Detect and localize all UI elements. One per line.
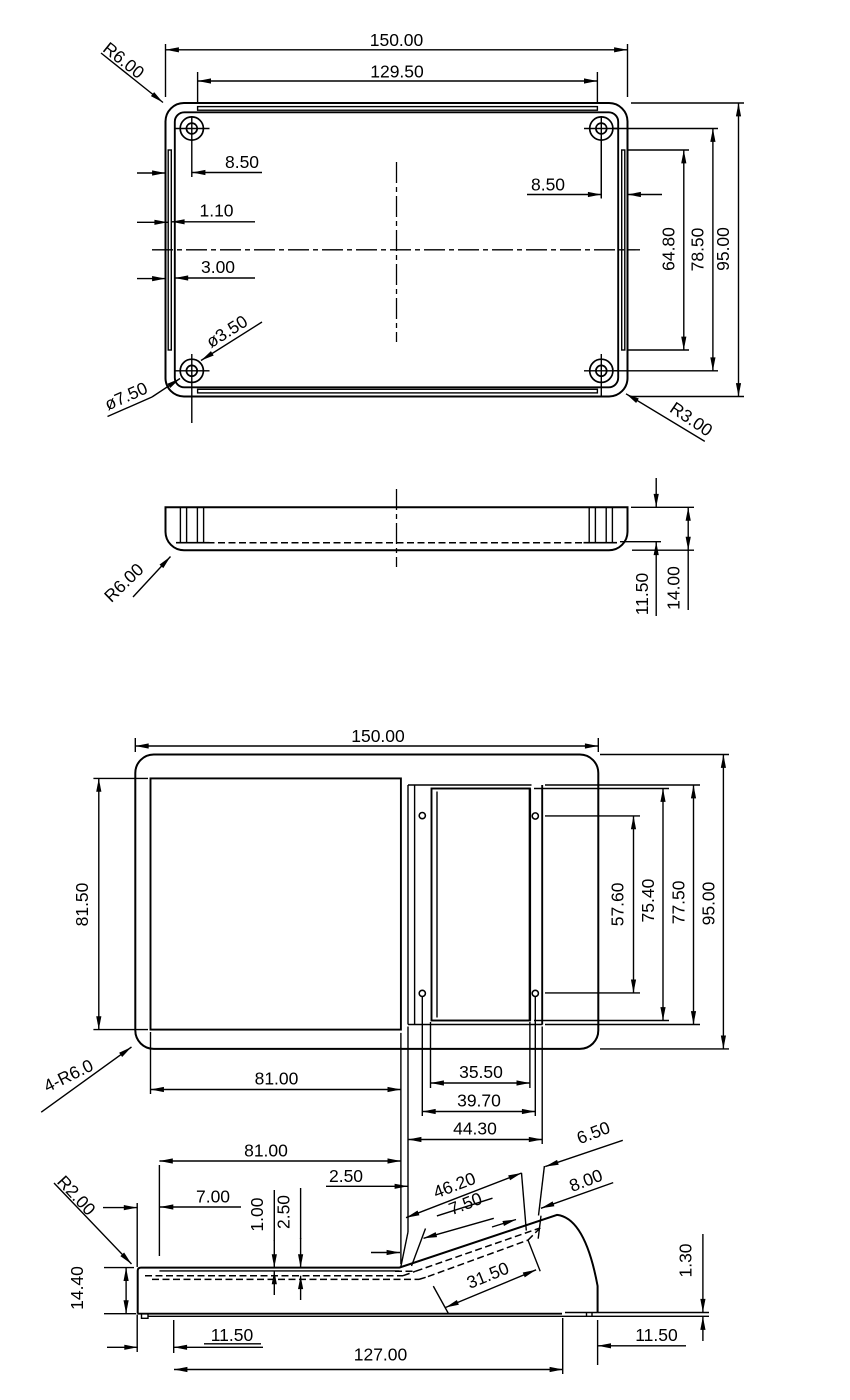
svg-text:81.00: 81.00 xyxy=(244,1141,288,1161)
svg-text:1.30: 1.30 xyxy=(676,1243,696,1277)
svg-text:14.00: 14.00 xyxy=(664,566,684,610)
svg-text:127.00: 127.00 xyxy=(354,1345,408,1365)
svg-text:2.50: 2.50 xyxy=(329,1166,363,1186)
svg-text:81.00: 81.00 xyxy=(255,1069,299,1089)
svg-text:150.00: 150.00 xyxy=(370,30,424,50)
svg-text:8.50: 8.50 xyxy=(531,175,565,195)
svg-text:81.50: 81.50 xyxy=(72,882,92,926)
svg-text:7.00: 7.00 xyxy=(196,1187,230,1207)
svg-text:11.50: 11.50 xyxy=(635,1325,678,1345)
svg-text:129.50: 129.50 xyxy=(370,62,424,82)
svg-text:77.50: 77.50 xyxy=(668,880,688,924)
svg-text:1.00: 1.00 xyxy=(247,1197,267,1231)
svg-text:35.50: 35.50 xyxy=(459,1062,503,1082)
svg-text:14.40: 14.40 xyxy=(67,1266,87,1310)
svg-text:3.00: 3.00 xyxy=(201,257,235,277)
svg-text:57.60: 57.60 xyxy=(607,882,627,926)
svg-text:11.50: 11.50 xyxy=(211,1325,254,1345)
svg-text:11.50: 11.50 xyxy=(632,572,652,615)
svg-text:64.80: 64.80 xyxy=(659,227,679,271)
svg-text:95.00: 95.00 xyxy=(699,881,719,925)
svg-text:95.00: 95.00 xyxy=(713,227,733,271)
svg-text:8.50: 8.50 xyxy=(225,152,259,172)
svg-text:1.10: 1.10 xyxy=(199,201,233,221)
svg-text:78.50: 78.50 xyxy=(688,227,708,271)
svg-text:150.00: 150.00 xyxy=(351,726,405,746)
svg-text:44.30: 44.30 xyxy=(453,1118,497,1138)
svg-text:39.70: 39.70 xyxy=(457,1090,501,1110)
svg-text:2.50: 2.50 xyxy=(274,1195,294,1229)
svg-text:75.40: 75.40 xyxy=(638,878,658,922)
